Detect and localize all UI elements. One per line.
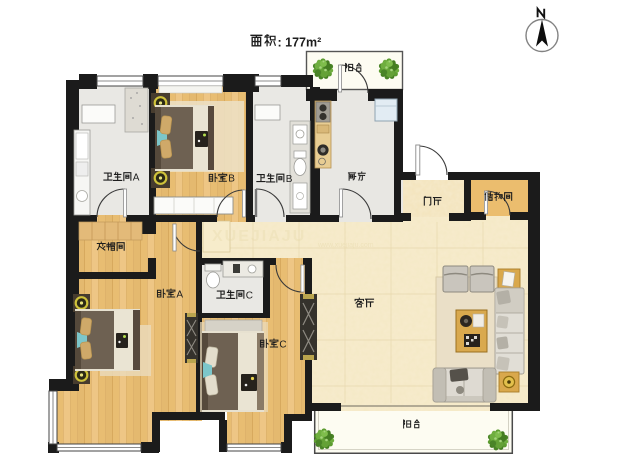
svg-text:B: B bbox=[228, 174, 235, 185]
svg-text:www.xuejiaju.com: www.xuejiaju.com bbox=[317, 242, 374, 249]
svg-text:XUEJIAJU: XUEJIAJU bbox=[212, 228, 306, 245]
svg-text:A: A bbox=[133, 172, 140, 183]
svg-text:A: A bbox=[176, 289, 183, 300]
svg-text:B: B bbox=[286, 174, 293, 185]
svg-text:C: C bbox=[279, 339, 286, 350]
svg-text:C: C bbox=[246, 290, 253, 301]
svg-text:: 177m²: : 177m² bbox=[278, 36, 322, 50]
